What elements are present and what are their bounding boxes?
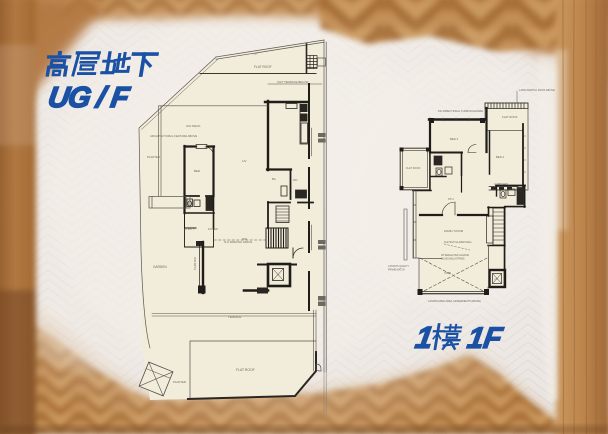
svg-text:WC: WC: [293, 178, 298, 182]
svg-text:FOYER: FOYER: [208, 227, 218, 231]
svg-text:N.& HIGH GLAZED WALL: N.& HIGH GLAZED WALL: [444, 241, 473, 244]
svg-text:O/H DECK: O/H DECK: [186, 124, 201, 128]
svg-text:STU: STU: [448, 197, 454, 201]
svg-text:FRAME MATCH: FRAME MATCH: [388, 269, 405, 272]
svg-text:LANDSCAPED AREA (UNDERNEATH AB: LANDSCAPED AREA (UNDERNEATH ABOVE): [428, 300, 481, 303]
svg-text:7.4M: 7.4M: [252, 51, 258, 56]
svg-text:P/H DIRECTIONAL THOROUGHFARE: P/H DIRECTIONAL THOROUGHFARE: [438, 109, 483, 113]
svg-text:PLANTER: PLANTER: [147, 155, 160, 159]
svg-text:PLANTER: PLANTER: [173, 380, 186, 384]
svg-text:BED 2: BED 2: [496, 155, 505, 159]
svg-text:A POINTS QUALITY: A POINTS QUALITY: [388, 265, 410, 268]
svg-text:N.O PARKING SPACE: N.O PARKING SPACE: [224, 240, 252, 244]
svg-text:CHI? TERRACE BELOW: CHI? TERRACE BELOW: [277, 80, 309, 84]
svg-text:FLAT ROOF: FLAT ROOF: [502, 115, 518, 119]
svg-text:TERRACE: TERRACE: [228, 315, 241, 319]
svg-text:GLASS BALUSTRADE: GLASS BALUSTRADE: [441, 258, 465, 261]
svg-text:VOID: VOID: [444, 271, 451, 275]
svg-text:BED 3: BED 3: [450, 137, 459, 141]
svg-text:FLAT ROOF: FLAT ROOF: [254, 65, 272, 69]
svg-text:UP REFLECTED GLAZING: UP REFLECTED GLAZING: [441, 254, 469, 257]
svg-text:GARDEN: GARDEN: [153, 265, 167, 269]
svg-text:BA: BA: [272, 177, 276, 181]
svg-text:UG / F: UG / F: [46, 82, 133, 114]
svg-text:PLANTER: PLANTER: [193, 257, 197, 270]
svg-text:UTILITY: UTILITY: [184, 227, 195, 231]
svg-text:FLAT ROOF: FLAT ROOF: [406, 166, 421, 170]
svg-text:LAND PARTIAL ROOF ABOVE: LAND PARTIAL ROOF ABOVE: [519, 88, 555, 92]
svg-text:FLAT ROOF: FLAT ROOF: [236, 368, 255, 372]
svg-text:FAMILY ROOM: FAMILY ROOM: [444, 229, 464, 233]
svg-text:BED: BED: [194, 169, 201, 173]
svg-text:LIV: LIV: [242, 159, 247, 163]
svg-text:LIFT: LIFT: [494, 279, 499, 281]
svg-text:ARCHITECTURAL FEATURE ABOVE: ARCHITECTURAL FEATURE ABOVE: [150, 134, 197, 138]
svg-text:DIN: DIN: [242, 237, 247, 241]
